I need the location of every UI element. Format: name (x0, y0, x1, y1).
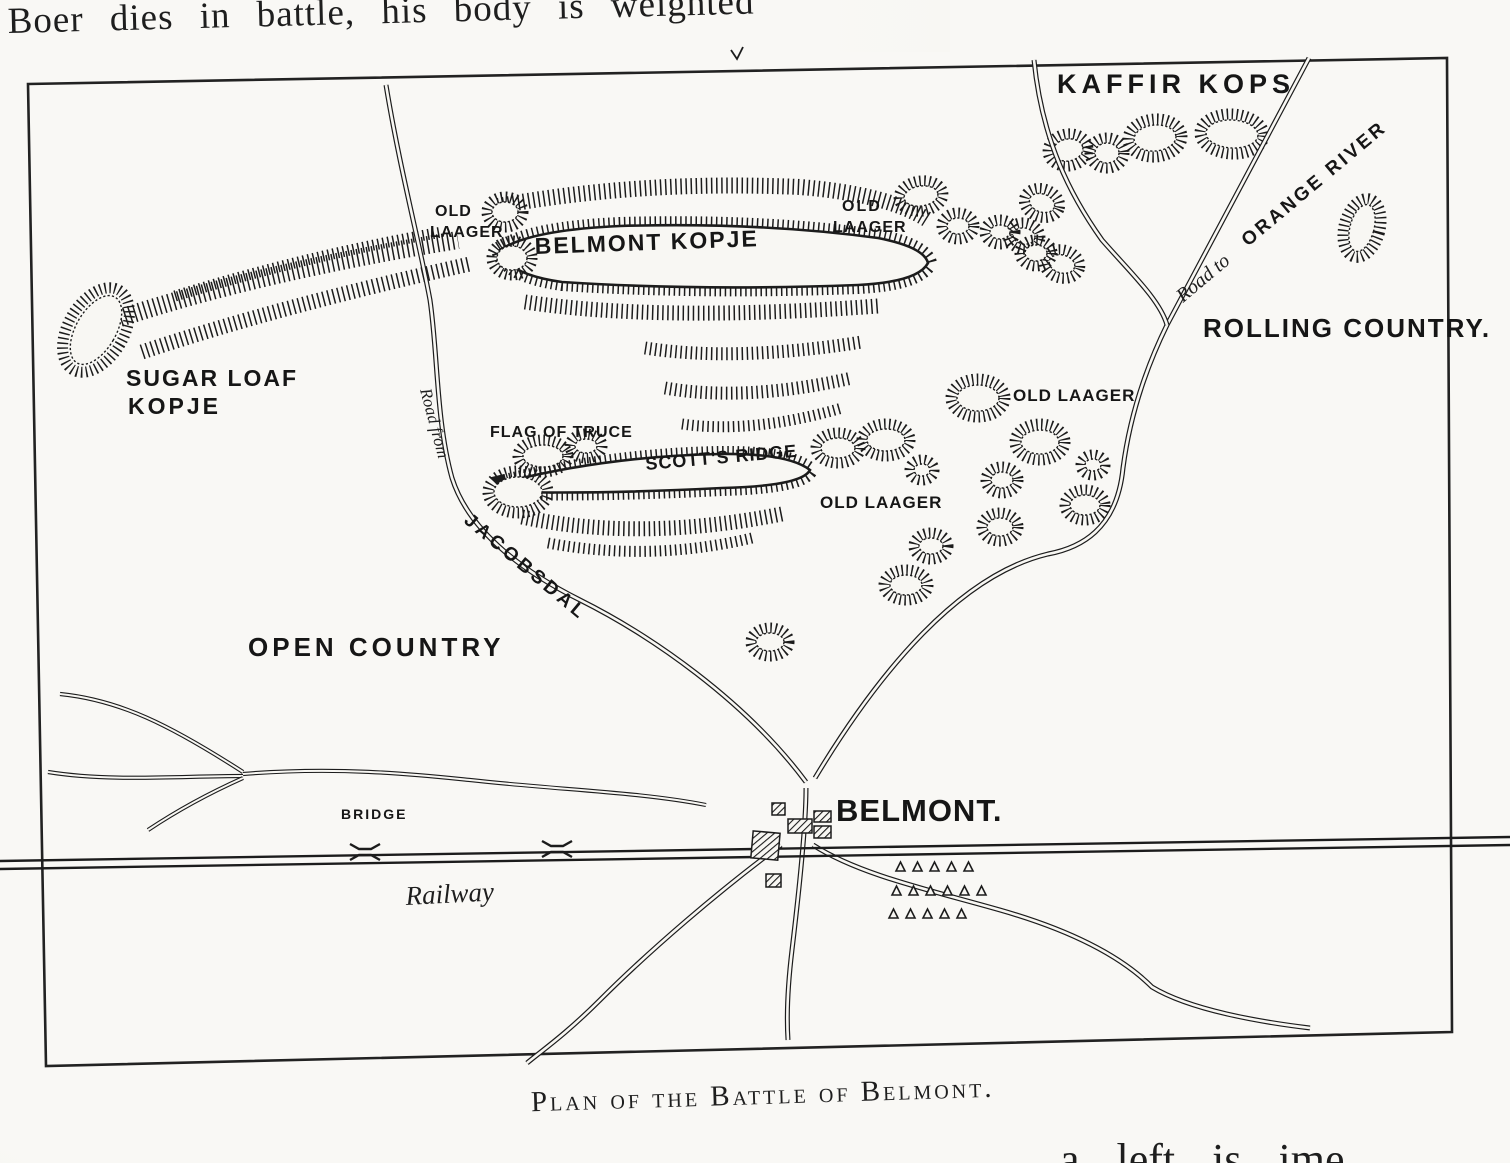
label-sugar-loaf-2: KOPJE (128, 393, 221, 419)
lone-kopje-center (751, 628, 789, 656)
label-flag-of-truce: FLAG OF TRUCE (490, 424, 633, 441)
label-old-laager-nw-2: LAAGER (430, 224, 504, 241)
label-old-laager-nw-1: OLD (435, 203, 472, 220)
ink-fade (820, 0, 950, 52)
lone-kopje-east (1337, 194, 1387, 261)
label-old-laager-east: OLD LAAGER (1013, 386, 1135, 405)
bridge-symbol (350, 844, 380, 860)
label-jacobsdal: JACOBSDAL (460, 510, 592, 625)
label-sugar-loaf-1: SUGAR LOAF (126, 365, 298, 391)
old-laager-south-hills (884, 513, 1018, 600)
label-belmont-town: BELMONT. (836, 793, 1002, 828)
map-caption: Plan of the Battle of Belmont. (530, 1072, 995, 1119)
top-cutoff-text: Boer dies in battle, his body is weighte… (7, 0, 950, 52)
label-old-laager-ne-2: LAAGER (833, 219, 907, 236)
label-kaffir-kops: KAFFIR KOPS (1057, 69, 1295, 99)
label-road-from: Road from (416, 385, 453, 460)
battle-map-canvas: Boer dies in battle, his body is weighte… (0, 0, 1510, 1163)
label-bridge: BRIDGE (341, 806, 407, 822)
frame-tick (731, 47, 743, 59)
label-rolling-country: ROLLING COUNTRY. (1203, 313, 1491, 343)
road-southeast (813, 845, 1310, 1028)
top-text-line: Boer dies in battle, his body is weighte… (7, 0, 755, 42)
bottom-cutoff-text: a left is ime (1060, 1135, 1345, 1163)
label-railway: Railway (404, 876, 495, 911)
bridge-symbol (542, 841, 572, 857)
army-tents (889, 862, 986, 918)
label-open-country: OPEN COUNTRY (248, 632, 505, 662)
label-old-laager-ne-1: OLD (842, 198, 882, 215)
label-old-laager-south: OLD LAAGER (820, 493, 942, 512)
road-kaffir-branch (1034, 60, 1167, 325)
belmont-buildings (751, 803, 831, 887)
scotts-ridge-east-hills (816, 424, 934, 480)
scanned-book-page: Boer dies in battle, his body is weighte… (0, 0, 1510, 1163)
road-southwest (527, 845, 781, 1063)
map-frame (28, 58, 1452, 1066)
